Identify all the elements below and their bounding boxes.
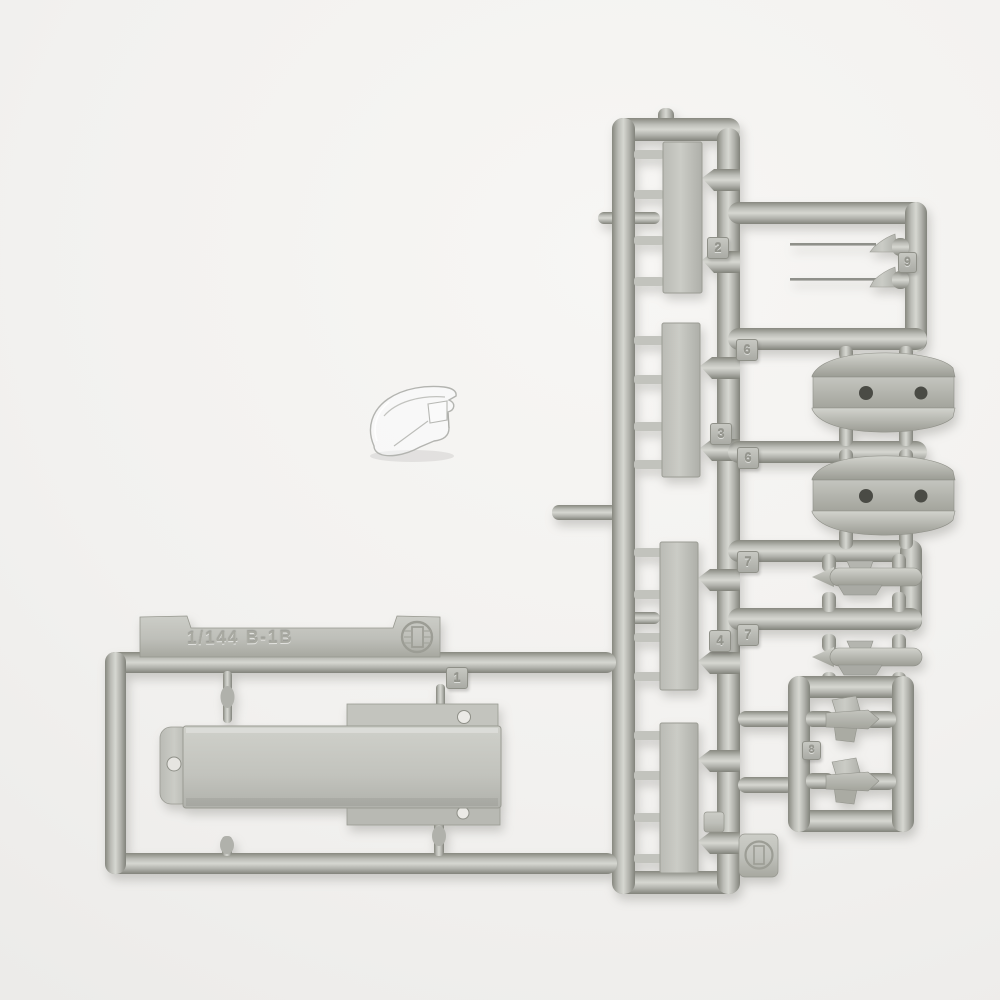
part-number-tag-3: 3 [710, 423, 732, 445]
scale-label: 1/144 B-1B [187, 627, 294, 649]
part-number-tag-6a: 6 [736, 339, 758, 361]
part-number-tag-4: 4 [709, 630, 731, 652]
pitot-part-2 [790, 267, 909, 289]
bottom-right-box-runners [738, 676, 914, 832]
logo-tab [739, 834, 778, 877]
part-number-tag-8: 8 [802, 741, 821, 760]
fuselage-panel-part [160, 704, 501, 825]
tailfin-part-2 [806, 758, 896, 804]
part-number-tag-7b: 7 [737, 624, 759, 646]
part-number-tag-9: 9 [898, 252, 917, 273]
pod-part-1 [812, 554, 922, 612]
sprue-photo: 1 2 3 4 6 6 7 7 8 9 1/144 B-1B [0, 0, 1000, 1000]
part-number-tag-6b: 6 [737, 447, 759, 469]
part-number-tag-1: 1 [446, 667, 468, 689]
sprue-graphic [0, 0, 1000, 1000]
sprue-stub [552, 505, 618, 520]
canopy-clear-part [370, 386, 456, 462]
engine-nacelle-part-1 [812, 346, 955, 446]
engine-nacelle-part-2 [812, 449, 955, 549]
part-number-tag-7a: 7 [737, 551, 759, 573]
part-number-tag-2: 2 [707, 237, 729, 259]
tailfin-part-1 [806, 696, 896, 742]
blank-tab [704, 812, 724, 832]
pitot-part-1 [790, 234, 909, 256]
